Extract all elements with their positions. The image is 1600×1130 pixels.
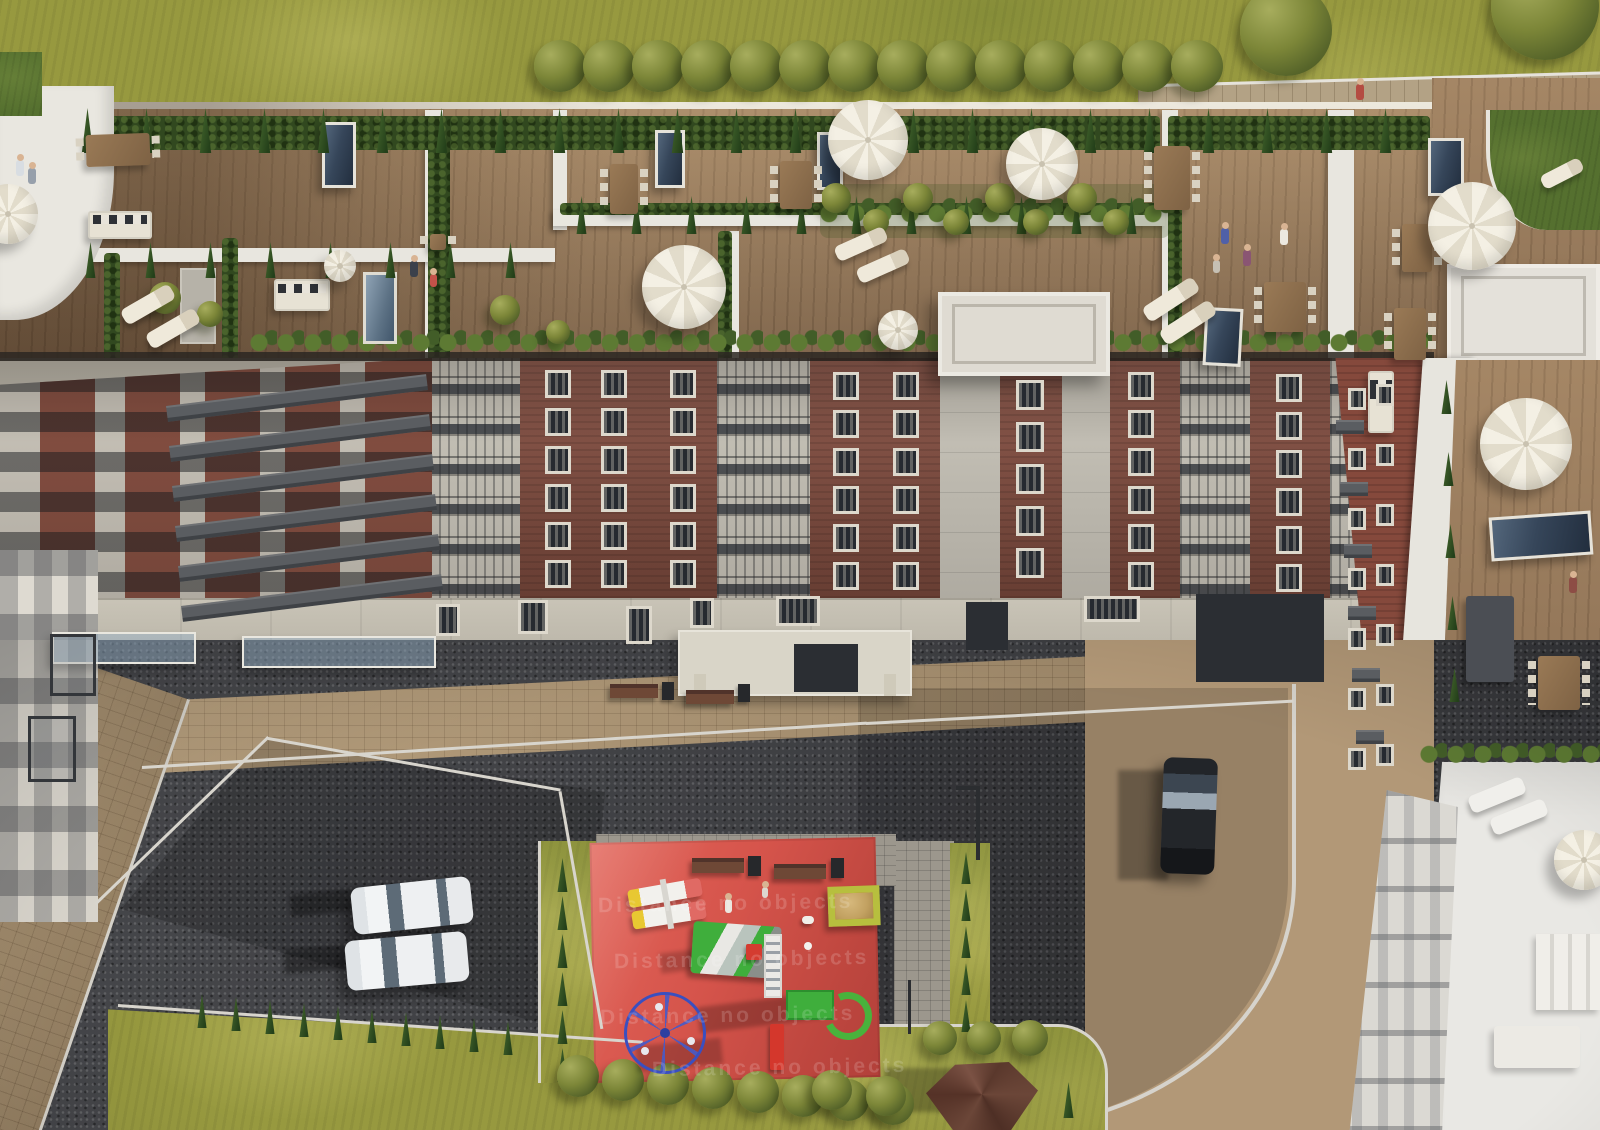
win <box>690 598 714 628</box>
facade-windows <box>670 408 696 436</box>
person <box>1243 250 1251 266</box>
dining-table <box>1394 308 1426 360</box>
tree-row-lawn <box>632 40 684 92</box>
roof-access-box <box>1447 264 1600 368</box>
facade-windows <box>545 408 571 436</box>
person <box>725 899 732 913</box>
person <box>1221 228 1229 244</box>
facade-windows <box>545 484 571 512</box>
person <box>1356 84 1364 100</box>
right-band-balconies <box>1344 544 1372 558</box>
facade-windows <box>833 410 859 438</box>
right-band-windows <box>1348 448 1366 470</box>
facade-windows <box>1276 526 1302 554</box>
climber-ladder <box>764 934 782 998</box>
bush <box>812 1070 852 1110</box>
right-band-windows <box>1376 384 1394 406</box>
facade-windows <box>1276 564 1302 592</box>
person <box>1280 229 1288 245</box>
right-band-windows <box>1348 688 1366 710</box>
facade-windows <box>601 484 627 512</box>
facade-windows <box>601 522 627 550</box>
facade-windows <box>545 370 571 398</box>
person <box>16 160 24 176</box>
facade-windows <box>893 448 919 476</box>
win <box>626 606 652 644</box>
right-band-windows <box>1376 624 1394 646</box>
right-band-windows <box>1348 388 1366 410</box>
facade-windows <box>833 524 859 552</box>
right-band-windows <box>1376 564 1394 586</box>
facade-windows <box>601 560 627 588</box>
glass-panel <box>363 272 397 344</box>
facade-windows <box>545 446 571 474</box>
facade-windows <box>1276 412 1302 440</box>
dining-table <box>1154 146 1190 210</box>
bush <box>490 295 520 325</box>
facade-windows <box>893 562 919 590</box>
eq <box>746 944 762 960</box>
dog <box>802 916 814 924</box>
dining-table <box>1264 282 1306 332</box>
person <box>28 168 36 184</box>
black-car <box>1160 757 1218 875</box>
lawn-strip-playground-right <box>950 843 990 1037</box>
tower-windows <box>1016 506 1044 536</box>
door <box>966 602 1008 650</box>
facade-brick-section <box>520 358 656 600</box>
win <box>776 596 820 626</box>
terrace-wall <box>58 248 555 262</box>
facade-windows <box>1128 486 1154 514</box>
facade-windows <box>670 370 696 398</box>
skylight <box>1489 510 1594 561</box>
facade-windows <box>1276 450 1302 478</box>
win <box>518 600 548 634</box>
terrace-garden-trees <box>903 183 933 213</box>
right-band-balconies <box>1336 420 1364 434</box>
umbrella <box>324 250 356 282</box>
tower-windows <box>1016 422 1044 452</box>
dining-table <box>780 161 812 209</box>
facade-windows <box>893 486 919 514</box>
ball <box>804 942 812 950</box>
street-lamp <box>976 788 980 860</box>
terrace-garden-trees <box>943 209 969 235</box>
sofa <box>274 279 330 311</box>
facade-windows <box>601 370 627 398</box>
facade-windows <box>1128 562 1154 590</box>
person <box>410 261 418 277</box>
facade-windows <box>545 522 571 550</box>
tower-windows <box>1016 548 1044 578</box>
skylight <box>322 122 356 188</box>
bench <box>610 684 658 698</box>
passage <box>1196 594 1324 682</box>
bush <box>967 1021 1001 1055</box>
terrace-garden-trees <box>1023 209 1049 235</box>
left-lawn-patch <box>0 52 42 116</box>
bistro-table <box>430 234 446 250</box>
dining-table <box>610 164 638 214</box>
white-roof-hedge <box>1420 740 1600 766</box>
umbrella <box>828 100 908 180</box>
facade-windows <box>833 562 859 590</box>
facade-windows <box>893 372 919 400</box>
bush-row-lawn <box>692 1067 734 1109</box>
facade-balcony-section <box>717 358 810 600</box>
right-band-balconies <box>1356 730 1384 744</box>
umbrella <box>1480 398 1572 490</box>
white-furniture-set <box>1536 934 1600 1010</box>
facade-windows <box>1128 448 1154 476</box>
facade-windows <box>833 486 859 514</box>
facade-windows <box>670 522 696 550</box>
bush-row-lawn <box>737 1071 779 1113</box>
bush <box>923 1021 957 1055</box>
tree-row-lawn <box>730 40 782 92</box>
win <box>1084 596 1140 622</box>
right-band-balconies <box>1352 668 1380 682</box>
right-band-windows <box>1348 568 1366 590</box>
tree-row-lawn <box>534 40 586 92</box>
sandbox <box>827 885 880 927</box>
tree-row-lawn <box>877 40 929 92</box>
umbrella <box>642 245 726 329</box>
terrace-garden-trees <box>985 183 1015 213</box>
tower-windows <box>1016 464 1044 494</box>
metal-balcony <box>28 716 76 782</box>
facade-balcony-section <box>430 358 520 600</box>
facade-balcony-section <box>1180 358 1250 600</box>
right-band-windows <box>1376 504 1394 526</box>
planter-hedge <box>1180 116 1430 150</box>
tree-row-lawn <box>926 40 978 92</box>
bin <box>738 684 750 702</box>
umbrella <box>1428 182 1516 270</box>
umbrella <box>1006 128 1078 200</box>
planter-hedge <box>222 238 238 370</box>
bin <box>831 858 844 878</box>
right-band-balconies <box>1348 606 1376 620</box>
win <box>436 604 460 636</box>
facade-brick-section <box>810 358 940 600</box>
tree-row-lawn <box>975 40 1027 92</box>
planter-hedge <box>55 116 1160 150</box>
person <box>1569 577 1577 593</box>
bush-row-lawn <box>557 1055 599 1097</box>
right-band-windows <box>1376 684 1394 706</box>
facade-windows <box>893 524 919 552</box>
person <box>762 887 768 898</box>
right-band-windows <box>1376 444 1394 466</box>
terrace-garden-trees <box>1067 183 1097 213</box>
right-band-windows <box>1348 508 1366 530</box>
bush <box>197 301 223 327</box>
facade-windows <box>601 446 627 474</box>
pillar <box>884 674 896 696</box>
aerial-render-scene: Distance no objectsDistance no objectsDi… <box>0 0 1600 1130</box>
facade-windows <box>1128 410 1154 438</box>
person <box>1213 260 1220 273</box>
rooftop-stair-box <box>938 292 1110 376</box>
facade-windows <box>601 408 627 436</box>
facade-windows <box>670 446 696 474</box>
right-band-windows <box>1376 744 1394 766</box>
entrance-canopy <box>242 636 436 668</box>
right-band-windows <box>1348 748 1366 770</box>
small-post <box>908 980 911 1034</box>
tree-row-lawn <box>583 40 635 92</box>
sofa-dark <box>1466 596 1514 682</box>
facade-windows <box>670 560 696 588</box>
tree-row-lawn <box>828 40 880 92</box>
facade-windows <box>893 410 919 438</box>
bench <box>774 864 826 879</box>
sofa <box>88 211 152 239</box>
terrace-garden-trees <box>821 183 851 213</box>
bin <box>748 856 761 876</box>
merry-go-round <box>624 992 706 1074</box>
facade-windows <box>833 448 859 476</box>
door <box>794 644 858 692</box>
dining-table <box>1538 656 1580 710</box>
bench <box>686 690 734 704</box>
bush <box>1012 1020 1048 1056</box>
facade-windows <box>670 484 696 512</box>
facade-windows <box>545 560 571 588</box>
bush <box>866 1076 906 1116</box>
facade-windows <box>1276 374 1302 402</box>
facade-windows <box>1128 372 1154 400</box>
terrace-garden-trees <box>1103 209 1129 235</box>
white-car-2 <box>344 931 470 991</box>
facade-windows <box>833 372 859 400</box>
person <box>430 274 437 287</box>
bench <box>692 858 744 873</box>
tower-windows <box>1016 380 1044 410</box>
tower-white-side <box>940 372 1000 600</box>
metal-balcony <box>50 634 96 696</box>
facade-windows <box>1128 524 1154 552</box>
right-band-balconies <box>1340 482 1368 496</box>
right-band-windows <box>1348 628 1366 650</box>
tree-row-lawn <box>779 40 831 92</box>
facade-windows <box>1276 488 1302 516</box>
playground-side-path <box>894 841 954 1041</box>
street-lamp-arm <box>956 786 980 790</box>
tree-row-lawn <box>1171 40 1223 92</box>
tree-row-lawn <box>1024 40 1076 92</box>
tree-row-lawn <box>681 40 733 92</box>
tree-row-lawn <box>1073 40 1125 92</box>
dining-table <box>85 133 150 167</box>
sofa-light <box>1494 1026 1580 1068</box>
tower-white-side <box>1062 372 1110 600</box>
tree-row-lawn <box>1122 40 1174 92</box>
climber-red-ladder <box>770 1024 784 1070</box>
umbrella <box>878 310 918 350</box>
bin <box>662 682 674 700</box>
bush <box>546 320 570 344</box>
